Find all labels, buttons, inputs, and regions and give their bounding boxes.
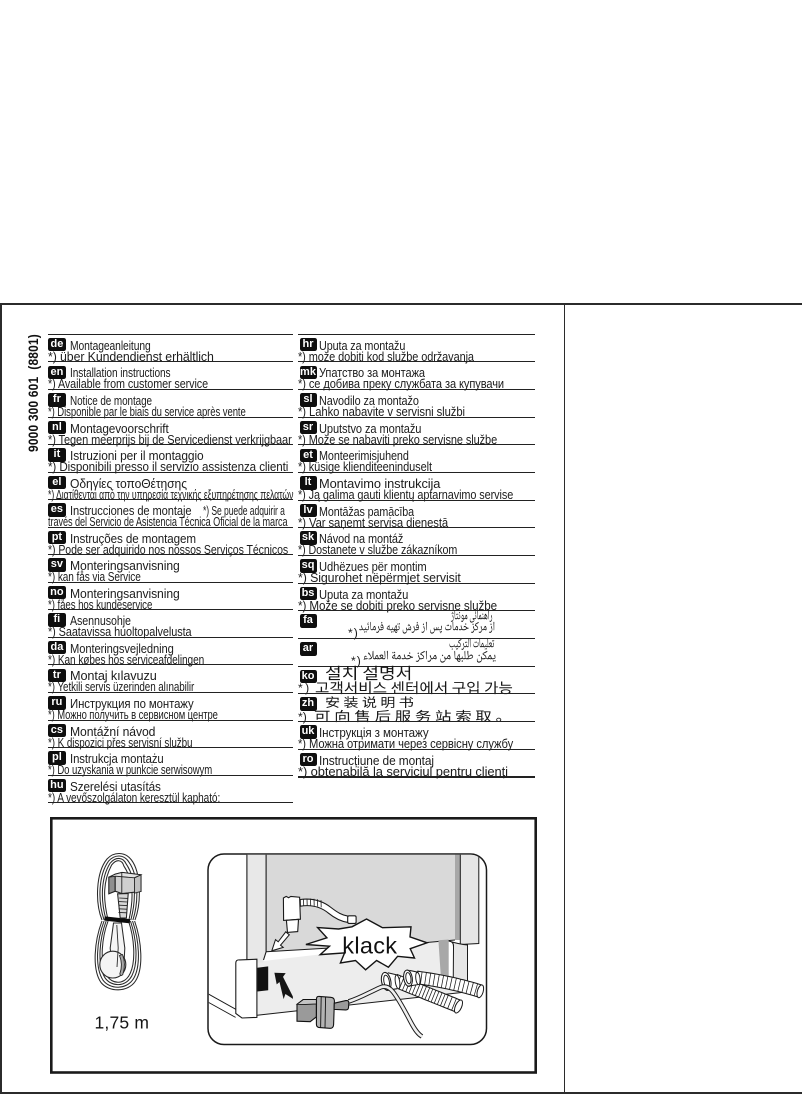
svg-text:klack: klack xyxy=(342,932,397,958)
svg-text:1,75 m: 1,75 m xyxy=(94,1012,149,1032)
